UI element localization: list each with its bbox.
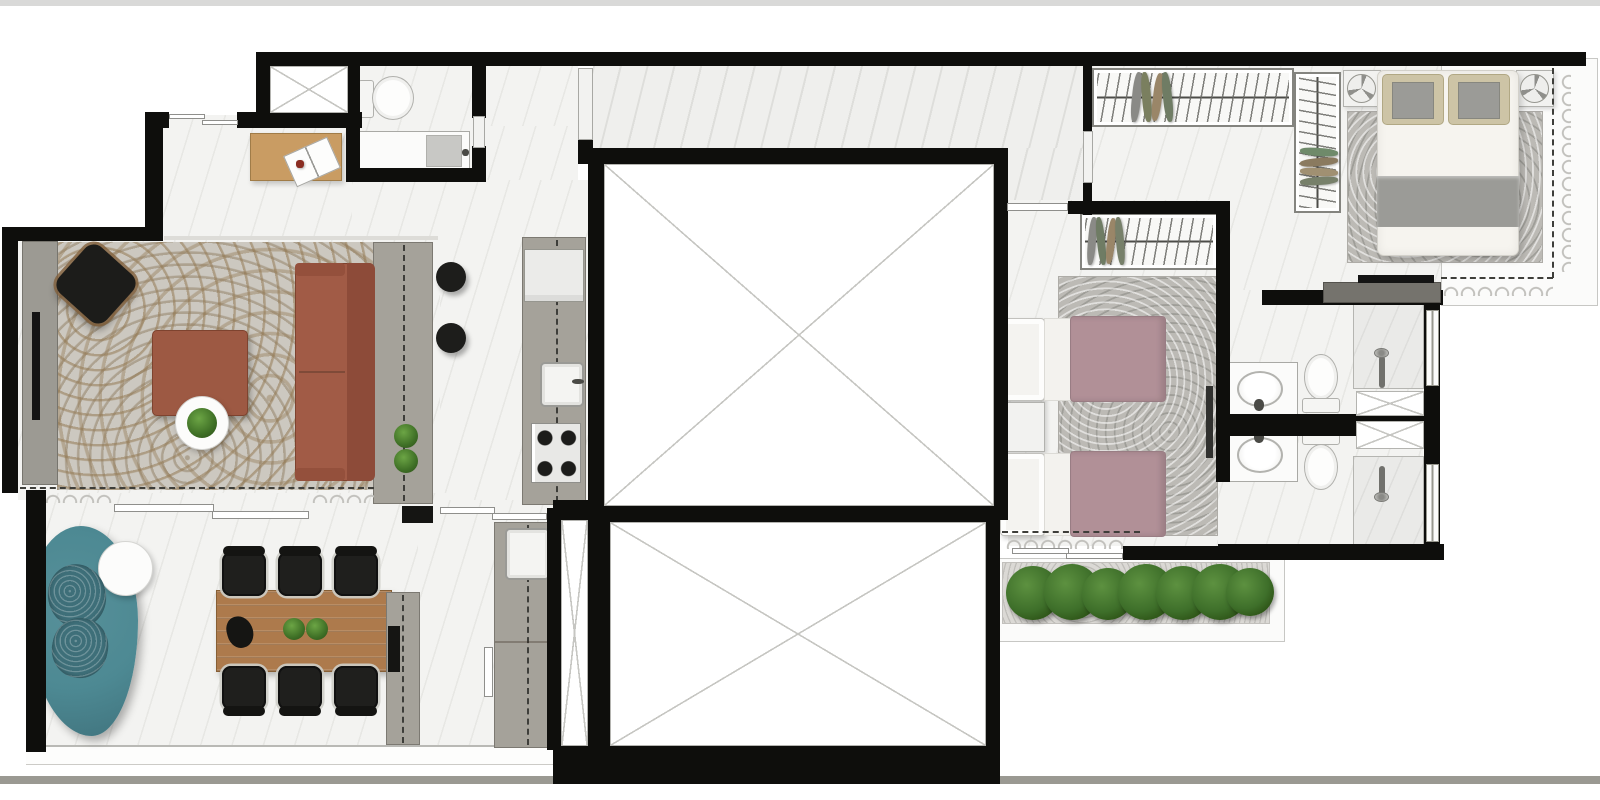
- island-stool-1: [436, 262, 466, 292]
- cooktop: [531, 423, 581, 483]
- living-sofa-back: [347, 263, 375, 481]
- living-terrace-glass-dash: [20, 487, 374, 489]
- bath1-shower: [1353, 296, 1424, 389]
- master-closet-top: [1092, 68, 1294, 127]
- master-pillow-right-inner: [1458, 82, 1500, 119]
- master-closet-side: [1294, 72, 1341, 213]
- tv-console: [22, 241, 58, 485]
- nightstand-fan-right: [1520, 74, 1549, 103]
- wall-shaft-upper-right: [993, 148, 1008, 520]
- bath1-toilet-tank: [1302, 398, 1340, 413]
- wall-twin-top: [1068, 201, 1230, 214]
- dining-chair-5: [278, 666, 322, 710]
- bath2-toilet-bowl: [1304, 444, 1338, 490]
- wall-service-right: [547, 508, 561, 750]
- entry-living-threshold: [164, 236, 438, 240]
- kitchen-sink: [540, 362, 584, 407]
- wall-living-left: [2, 227, 18, 493]
- twin-curtain: [1006, 535, 1124, 549]
- shaft-small-2: [1356, 421, 1424, 449]
- bath2-shower-head: [1374, 492, 1389, 502]
- lavabo-shower-drain: [462, 149, 469, 156]
- shaft-elevator-topleft: [270, 66, 348, 113]
- laundry-sink: [505, 528, 550, 580]
- laundry-divider: [495, 641, 551, 643]
- tray-plant: [187, 408, 217, 438]
- page-edge-top: [0, 0, 1600, 6]
- dining-chair-2: [278, 552, 322, 596]
- island-stool-2: [436, 323, 466, 353]
- shaft-large-upper: [604, 164, 994, 506]
- wall-master-entry-upper: [1083, 64, 1092, 133]
- master-bed-throw: [1377, 176, 1519, 227]
- wall-bottom-band: [553, 744, 1000, 784]
- master-window-dash-h: [1441, 277, 1553, 279]
- dining-chair-3: [334, 552, 378, 596]
- dining-chair-1: [222, 552, 266, 596]
- master-pillow-left-inner: [1392, 82, 1434, 119]
- wall-under-shaft: [237, 112, 362, 128]
- bath-window-1: [1426, 310, 1439, 386]
- twin-window-dash: [1002, 531, 1140, 533]
- wall-shaft-left: [256, 52, 270, 114]
- wall-shaft-upper-left: [588, 148, 604, 520]
- wall-bath1-top-stub: [1218, 290, 1230, 305]
- wall-terrace-left: [26, 490, 46, 752]
- master-window-dash-v: [1552, 68, 1554, 278]
- wall-lavabo-right-upper: [472, 66, 486, 118]
- living-tv: [32, 312, 40, 420]
- living-sofa-seam: [299, 371, 345, 373]
- terrace-slab-edge: [26, 745, 554, 765]
- wall-top-main: [256, 52, 1586, 66]
- corridor-floor: [593, 66, 1085, 148]
- bath1-faucet: [1254, 399, 1264, 411]
- master-tv-dresser: [1323, 282, 1441, 303]
- twin-sliding-panel-2: [1066, 553, 1123, 559]
- wall-twin-bottom: [1123, 546, 1220, 560]
- corridor-door-opening: [578, 68, 593, 140]
- living-sofa-arm-bottom: [295, 468, 345, 481]
- master-curtain-bottom: [1443, 282, 1553, 297]
- nightstand-fan-left: [1347, 74, 1376, 103]
- dining-chair-6: [334, 666, 378, 710]
- book-red-detail: [296, 160, 304, 168]
- master-curtain-right: [1557, 74, 1579, 272]
- wall-baths-bottom: [1218, 544, 1444, 560]
- master-door-opening: [1083, 131, 1093, 183]
- refrigerator: [524, 249, 584, 302]
- wall-lavabo-divider: [346, 66, 360, 182]
- twin-bed-2-blanket: [1070, 451, 1166, 537]
- bath1-toilet-bowl: [1304, 354, 1338, 400]
- living-curtain-right: [312, 490, 374, 503]
- bath2-shower: [1353, 456, 1424, 548]
- terrace-side-table: [98, 541, 153, 596]
- service-sliding-panel-1: [440, 507, 495, 514]
- lavabo-toilet-bowl: [372, 76, 414, 120]
- wall-shaft-lower-left: [587, 522, 611, 748]
- twin-room-door: [1007, 203, 1068, 211]
- twin-bed-1-blanket: [1070, 316, 1166, 402]
- bath1-shower-column: [1379, 356, 1385, 388]
- entry-door-panel-2: [202, 120, 238, 125]
- wall-living-top: [7, 227, 163, 241]
- apartment-floor-plan: [0, 0, 1600, 800]
- wall-corridor-bottom: [588, 148, 1008, 164]
- wall-twin-right: [1216, 203, 1230, 482]
- shaft-large-lower: [610, 522, 986, 746]
- dining-plant-1: [283, 618, 305, 640]
- island-end-tray: [402, 506, 433, 523]
- living-sliding-panel-2: [212, 511, 309, 519]
- living-sofa-arm-top: [295, 263, 345, 276]
- hedge-7: [1226, 568, 1274, 616]
- island-plant-1: [394, 424, 418, 448]
- dining-plant-2: [306, 618, 328, 640]
- twin-open-door-leaf: [1206, 386, 1213, 458]
- terrace-counter-dash: [402, 595, 404, 743]
- wall-shaft-lower-right: [985, 510, 1000, 784]
- terrace-grill: [388, 626, 400, 672]
- bath1-shower-head: [1374, 348, 1389, 358]
- laundry-door-handle: [484, 647, 493, 697]
- master-tv: [1358, 275, 1434, 283]
- living-sliding-panel-1: [114, 504, 214, 512]
- lavabo-door-opening: [473, 116, 485, 148]
- wall-lavabo-right-lower: [472, 146, 486, 182]
- kitchen-faucet: [572, 379, 584, 384]
- island-plant-2: [394, 449, 418, 473]
- service-sliding-panel-2: [492, 513, 547, 520]
- lavabo-shower-mat: [426, 135, 462, 167]
- dining-chair-4: [222, 666, 266, 710]
- twin-sliding-panel-1: [1012, 548, 1069, 554]
- shaft-small-1: [1356, 391, 1424, 416]
- wall-lavabo-bottom: [346, 168, 486, 182]
- shaft-narrow-strip: [561, 520, 588, 746]
- bath-window-2: [1426, 464, 1439, 542]
- entry-door-panel-1: [169, 114, 205, 119]
- wall-entry-left: [145, 112, 163, 241]
